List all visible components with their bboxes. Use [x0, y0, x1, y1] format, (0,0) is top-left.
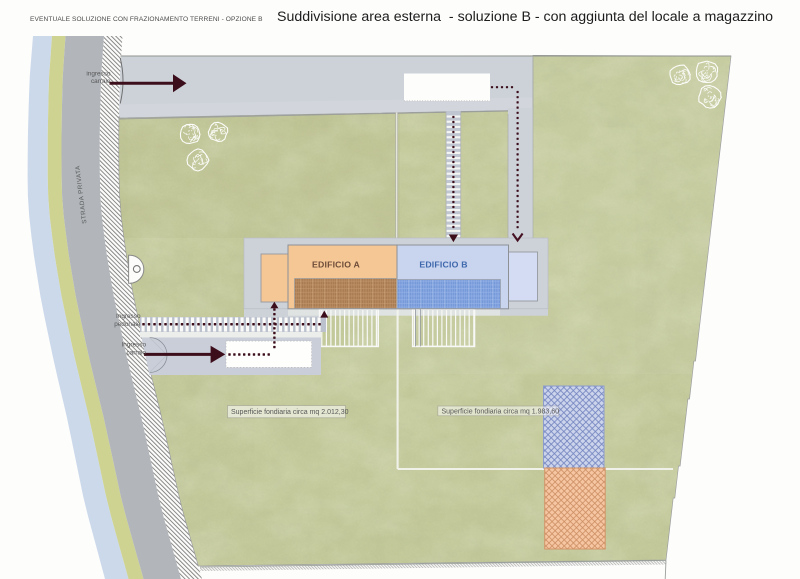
- svg-text:EDIFICIO A: EDIFICIO A: [312, 259, 361, 269]
- svg-text:ingresso: ingresso: [86, 71, 111, 78]
- svg-text:carraio: carraio: [126, 349, 146, 356]
- svg-text:Superficie fondiaria circa mq: Superficie fondiaria circa mq 2.012,30: [231, 409, 349, 416]
- svg-text:Ingresso: Ingresso: [116, 313, 141, 320]
- svg-text:carraio: carraio: [91, 78, 111, 85]
- svg-text:Ingresso: Ingresso: [121, 342, 146, 349]
- svg-text:pedonale: pedonale: [114, 321, 141, 328]
- svg-text:Superficie fondiaria circa mq: Superficie fondiaria circa mq 1.983,60: [442, 408, 560, 415]
- svg-text:EDIFICIO B: EDIFICIO B: [419, 259, 467, 269]
